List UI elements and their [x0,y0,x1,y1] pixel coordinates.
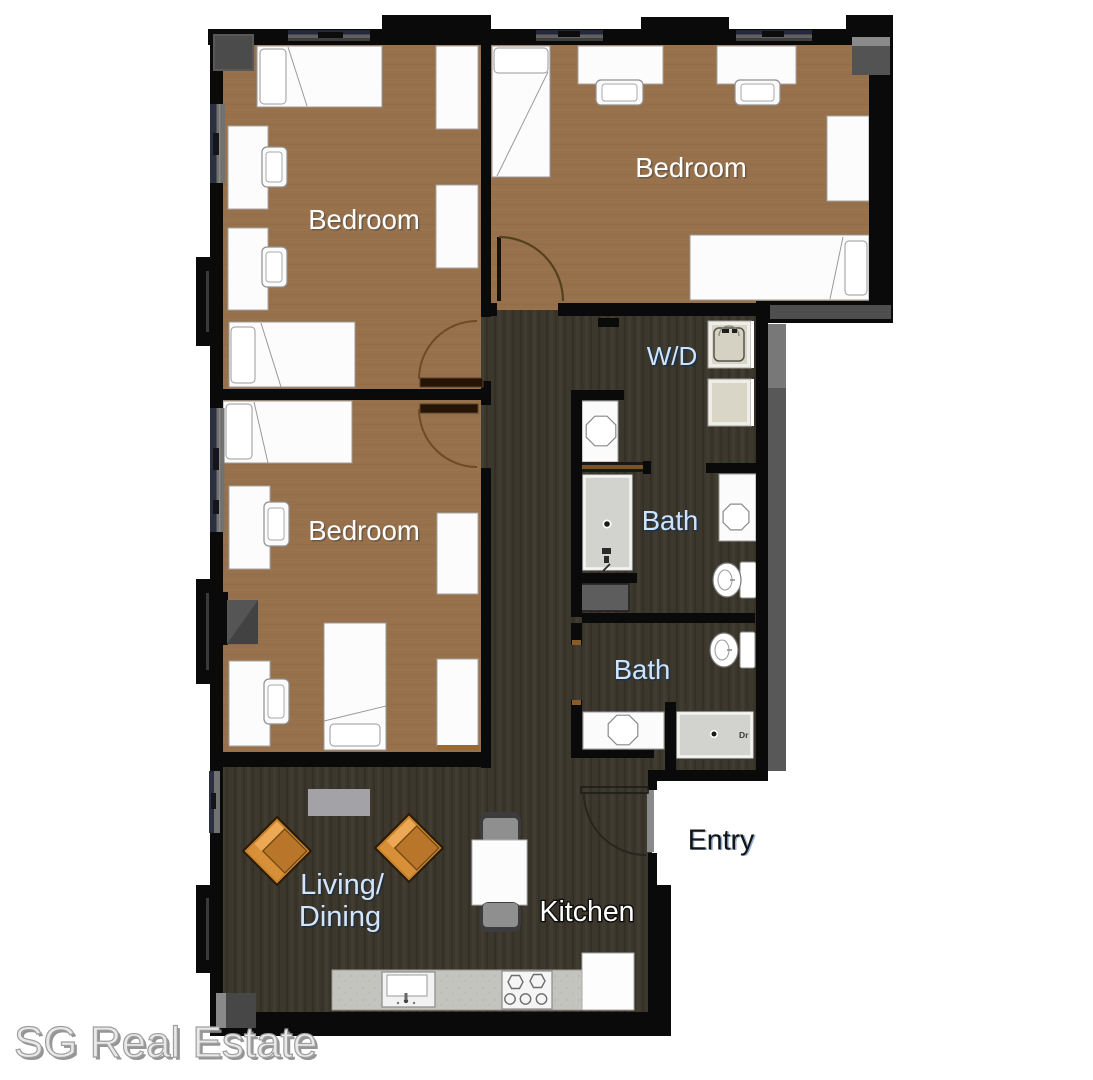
svg-text:Dr: Dr [739,730,749,740]
svg-text:Bedroom: Bedroom [308,515,420,546]
svg-text:Kitchen: Kitchen [539,896,634,928]
svg-text:Dining: Dining [299,901,381,933]
svg-text:SG Real Estate: SG Real Estate [14,1018,317,1067]
svg-text:W/D: W/D [647,341,698,371]
svg-text:Bath: Bath [614,654,671,685]
svg-text:Bath: Bath [642,505,699,536]
svg-text:Entry: Entry [688,825,755,857]
svg-text:Bedroom: Bedroom [308,204,420,235]
svg-text:Bedroom: Bedroom [635,152,747,183]
svg-text:Living/: Living/ [300,869,385,901]
